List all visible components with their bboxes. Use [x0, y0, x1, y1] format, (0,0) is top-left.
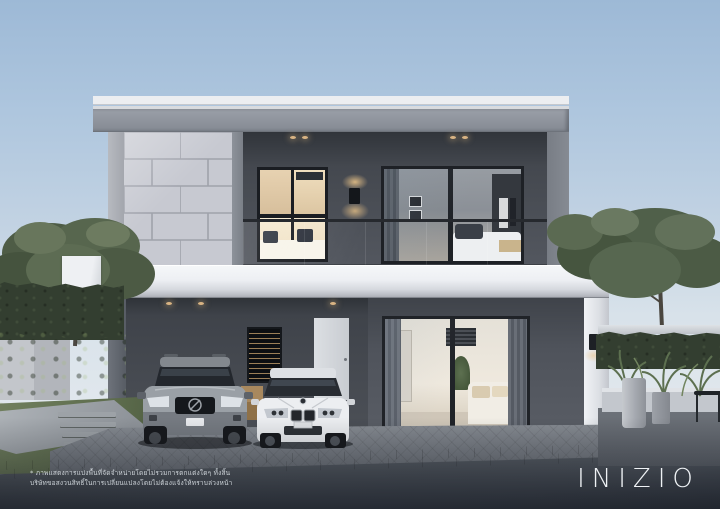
ceiling-downlight	[462, 136, 468, 139]
balcony-left-pier	[232, 132, 243, 266]
glass-balustrade	[243, 219, 547, 266]
roof-parapet	[93, 96, 569, 105]
disclaimer-text: * ภาพแสดงการแบ่งพื้นที่จัดจำหน่ายโดยไม่ร…	[30, 468, 290, 488]
fern-bed	[0, 330, 126, 404]
window-pane	[260, 170, 291, 214]
glass-reflection	[385, 319, 527, 427]
ceiling-downlight	[302, 136, 308, 139]
ceiling-downlight	[290, 136, 296, 139]
roof-fascia	[93, 109, 569, 132]
ceiling-downlight	[450, 136, 456, 139]
carport-downlight	[166, 302, 172, 305]
disclaimer-line-1: * ภาพแสดงการแบ่งพื้นที่จัดจำหน่ายโดยไม่ร…	[30, 468, 290, 478]
carport-downlight	[330, 302, 336, 305]
left-hedge	[0, 282, 124, 340]
table-leg	[696, 395, 698, 422]
door-knob	[344, 358, 347, 361]
disclaimer-line-2: บริษัทขอสงวนสิทธิ์ในการเปลี่ยนแปลงโดยไม่…	[30, 478, 290, 488]
planter-pot-tall	[622, 378, 646, 428]
air-conditioner	[296, 172, 323, 180]
carport-downlight	[198, 302, 204, 305]
patio-side-table	[694, 391, 720, 422]
suv-car	[134, 350, 256, 450]
brand-logo: INIZIO	[560, 464, 710, 494]
wall-sconce	[349, 188, 360, 204]
sedan-car	[248, 364, 358, 450]
living-room-sliding-door	[382, 316, 530, 430]
planter-pot-short	[652, 392, 670, 424]
architectural-render: * ภาพแสดงการแบ่งพื้นที่จัดจำหน่ายโดยไม่ร…	[0, 0, 720, 509]
sconce-downlight	[341, 202, 369, 220]
